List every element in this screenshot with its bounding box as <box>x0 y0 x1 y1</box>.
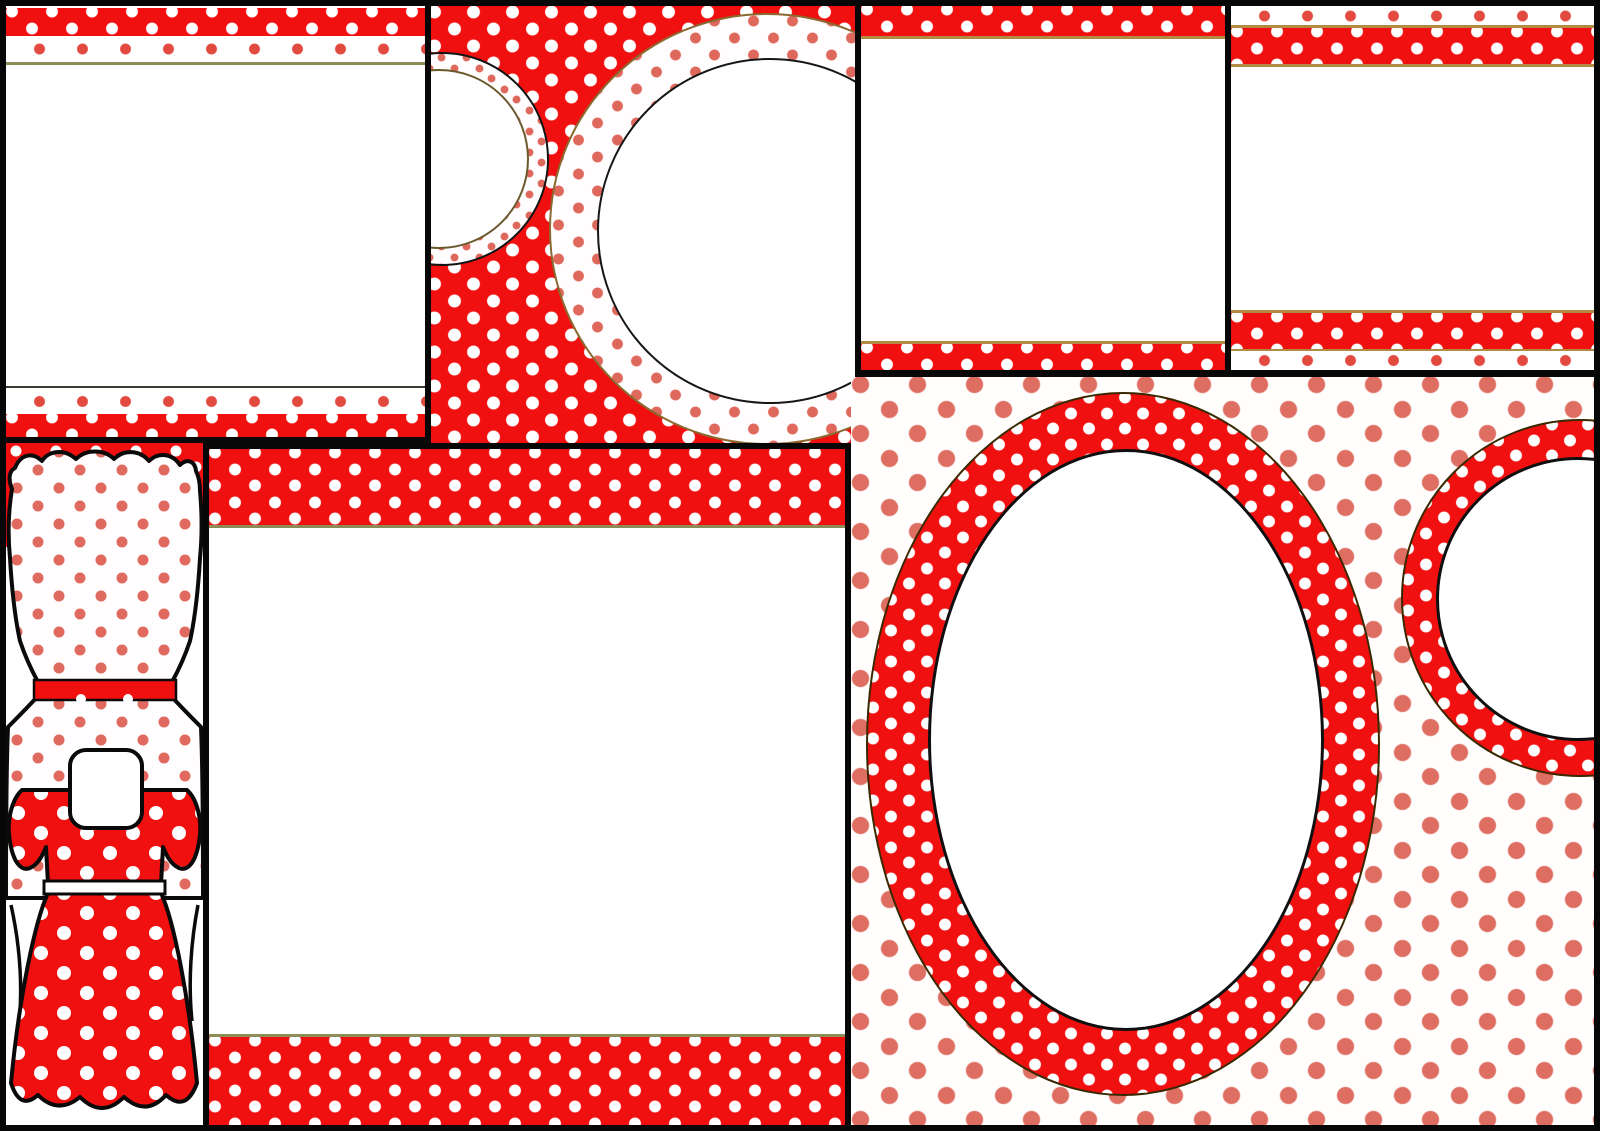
panel-bottom-center-frame <box>209 449 845 1125</box>
waistband-dot <box>123 694 133 704</box>
panel-dress-cutout <box>6 443 203 1125</box>
panel-top-middle-circles <box>431 6 855 443</box>
divider-line <box>209 525 845 528</box>
large-red-ring-center <box>928 449 1324 1031</box>
divider-line <box>6 386 425 388</box>
divider-line <box>861 36 1225 39</box>
blouse-waistband <box>34 680 176 700</box>
waistband-dot <box>76 694 86 704</box>
panel-top-left-frame <box>6 6 425 437</box>
polka-dot-template-collage <box>0 0 1600 1131</box>
red-polka-band-bottom <box>861 344 1225 370</box>
red-polka-band-bottom <box>1231 313 1594 349</box>
red-polka-band-top <box>209 449 845 525</box>
red-polka-band-bottom <box>209 1037 845 1125</box>
dress-neck-patch <box>70 750 142 828</box>
dress-belt <box>44 881 165 894</box>
red-polka-band-bottom <box>6 414 425 437</box>
divider-line <box>1231 64 1594 67</box>
dress-skirt <box>11 893 197 1108</box>
panel-top-center-right-frame <box>861 6 1225 370</box>
red-polka-band-top <box>1231 28 1594 64</box>
panel-bottom-right-circles <box>851 377 1594 1125</box>
blouse-shape <box>9 452 202 683</box>
red-dot-strip-bottom <box>6 389 425 414</box>
red-polka-band-top <box>861 6 1225 36</box>
red-dot-strip-top <box>1231 6 1594 26</box>
divider-line <box>6 62 425 65</box>
panel-top-far-right-frame <box>1231 6 1594 370</box>
red-dot-strip-top <box>6 36 425 62</box>
red-polka-band-top <box>6 8 425 36</box>
red-dot-strip-bottom <box>1231 351 1594 370</box>
dress-template-graphic <box>6 443 203 1125</box>
